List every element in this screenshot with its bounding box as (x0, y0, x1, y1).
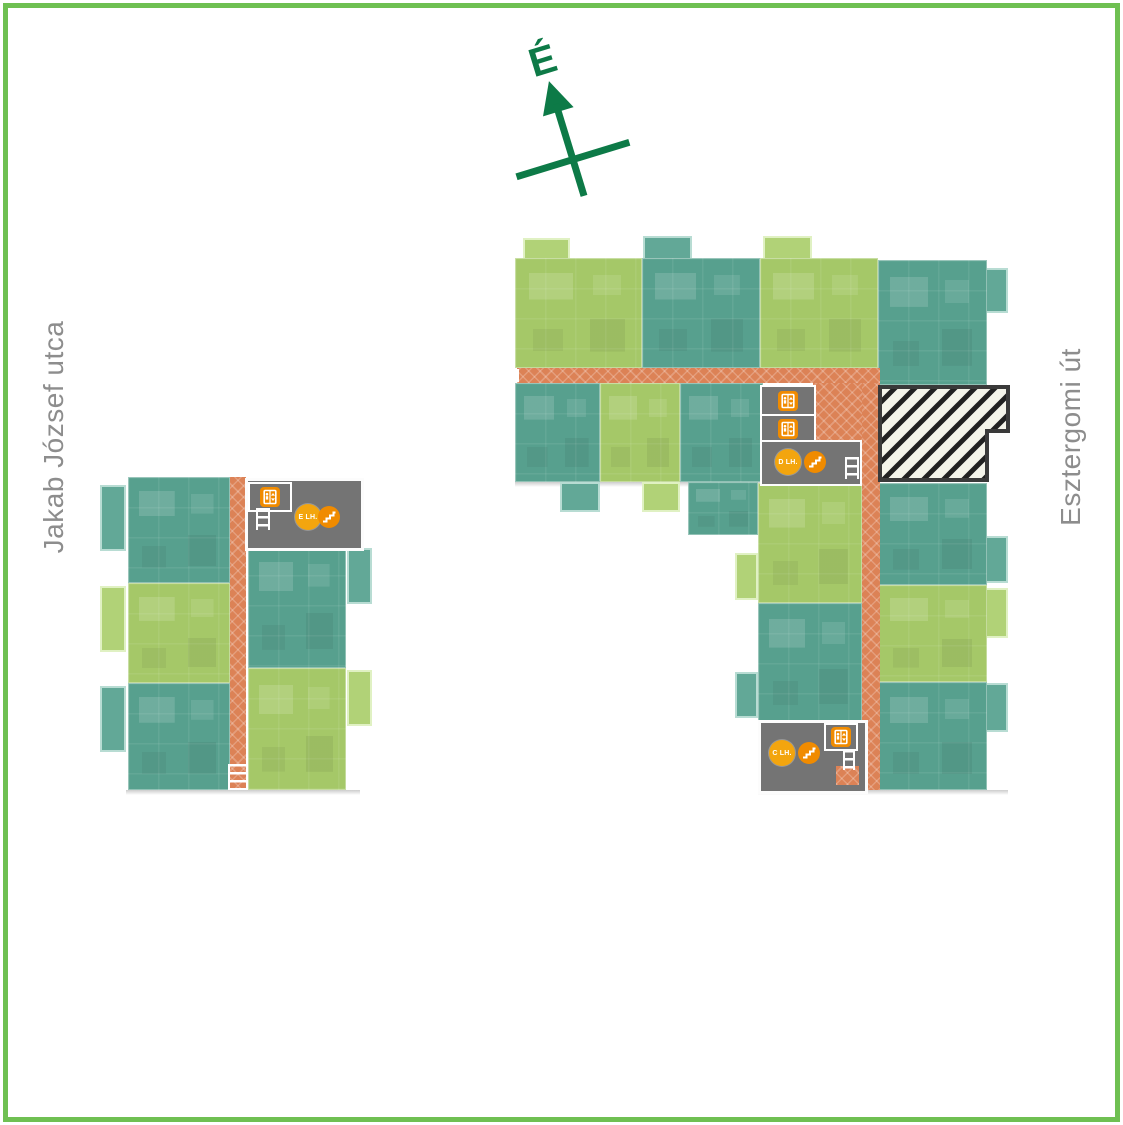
stairs-icon (798, 742, 820, 764)
building-left: E LH. (98, 474, 376, 796)
lift-core-badge-c: C LH. (769, 740, 795, 766)
lift-core-badge-d: D LH. (775, 449, 801, 475)
balcony (523, 238, 570, 260)
apartment-unit-green[interactable] (128, 583, 230, 683)
balcony (763, 236, 812, 260)
apartment-unit-green[interactable] (760, 258, 878, 368)
balcony (100, 586, 126, 652)
apartment-unit-green[interactable] (878, 585, 987, 682)
compass-arrow-shaft (556, 104, 584, 196)
elevator-icon (778, 391, 798, 411)
entrance-steps-symbol (228, 764, 248, 790)
corridor (230, 477, 246, 790)
balcony (735, 553, 758, 600)
apartment-unit-teal[interactable] (688, 482, 758, 535)
stair-core-c: C LH. (758, 720, 868, 794)
elevator-room (760, 385, 816, 416)
balcony (100, 485, 126, 551)
staircase-symbol (845, 457, 859, 479)
lift-core-label: E LH. (299, 514, 318, 521)
compass-north-label: É (523, 35, 562, 86)
balcony (347, 670, 372, 726)
stairs-icon (318, 506, 340, 528)
apartment-unit-teal[interactable] (878, 483, 987, 585)
apartment-unit-teal[interactable] (680, 383, 763, 482)
street-label-left: Jakab József utca (38, 321, 70, 554)
compass-north-indicator: É (495, 30, 645, 220)
staircase-symbol (256, 508, 270, 530)
site-plan-canvas: É Jakab József utca Esztergomi út (0, 0, 1123, 1125)
apartment-unit-green[interactable] (515, 258, 642, 368)
elevator-room (248, 482, 292, 512)
staircase-symbol (843, 750, 855, 770)
balcony (100, 686, 126, 752)
stair-core-e: E LH. (245, 478, 364, 551)
building-right: D LH. (515, 233, 1028, 795)
apartment-unit-teal[interactable] (515, 383, 600, 482)
elevator-icon (831, 727, 851, 747)
apartment-unit-green[interactable] (248, 668, 346, 790)
compass-cross-line (517, 142, 630, 176)
apartment-unit-teal[interactable] (758, 603, 862, 723)
balcony (735, 672, 758, 718)
corridor-entrance-mark (515, 369, 519, 382)
apartment-unit-green[interactable] (758, 483, 862, 603)
street-label-right: Esztergomi út (1055, 348, 1087, 526)
apartment-unit-teal[interactable] (128, 477, 230, 583)
apartment-unit-teal[interactable] (248, 545, 346, 668)
building-shadow (126, 790, 360, 795)
apartment-unit-teal[interactable] (642, 258, 760, 368)
balcony (643, 236, 692, 260)
apartment-unit-teal[interactable] (878, 682, 987, 790)
lift-core-label: C LH. (772, 750, 791, 757)
stairs-icon (804, 451, 826, 473)
elevator-room (824, 723, 858, 751)
apartment-unit-teal[interactable] (878, 260, 987, 385)
lift-core-label: D LH. (778, 459, 797, 466)
apartment-unit-green[interactable] (600, 383, 680, 482)
corridor (517, 368, 880, 383)
balcony (642, 482, 680, 512)
hatched-common-area (878, 385, 1010, 482)
balcony (560, 482, 600, 512)
apartment-unit-teal[interactable] (128, 683, 230, 790)
elevator-icon (778, 419, 798, 439)
elevator-icon (260, 487, 280, 507)
balcony (347, 548, 372, 604)
